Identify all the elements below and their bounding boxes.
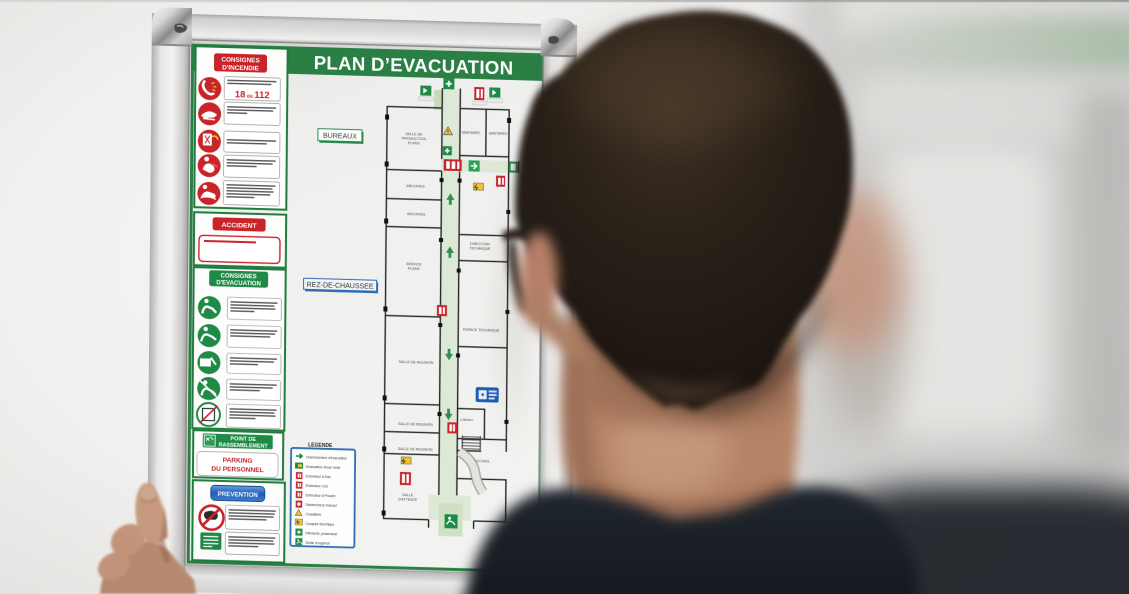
svg-text:D'ATTENTE: D'ATTENTE [398, 497, 418, 502]
svg-text:D'INCENDIE: D'INCENDIE [222, 64, 259, 72]
svg-text:ACCIDENT: ACCIDENT [222, 222, 258, 230]
svg-text:PLANS: PLANS [408, 141, 420, 145]
svg-text:CONSIGNES: CONSIGNES [221, 56, 260, 64]
svg-text:BUREAUX: BUREAUX [323, 133, 357, 141]
svg-text:PLANS: PLANS [408, 267, 420, 271]
svg-text:D'EVACUATION: D'EVACUATION [216, 280, 261, 287]
svg-text:CONSIGNES: CONSIGNES [221, 273, 257, 280]
